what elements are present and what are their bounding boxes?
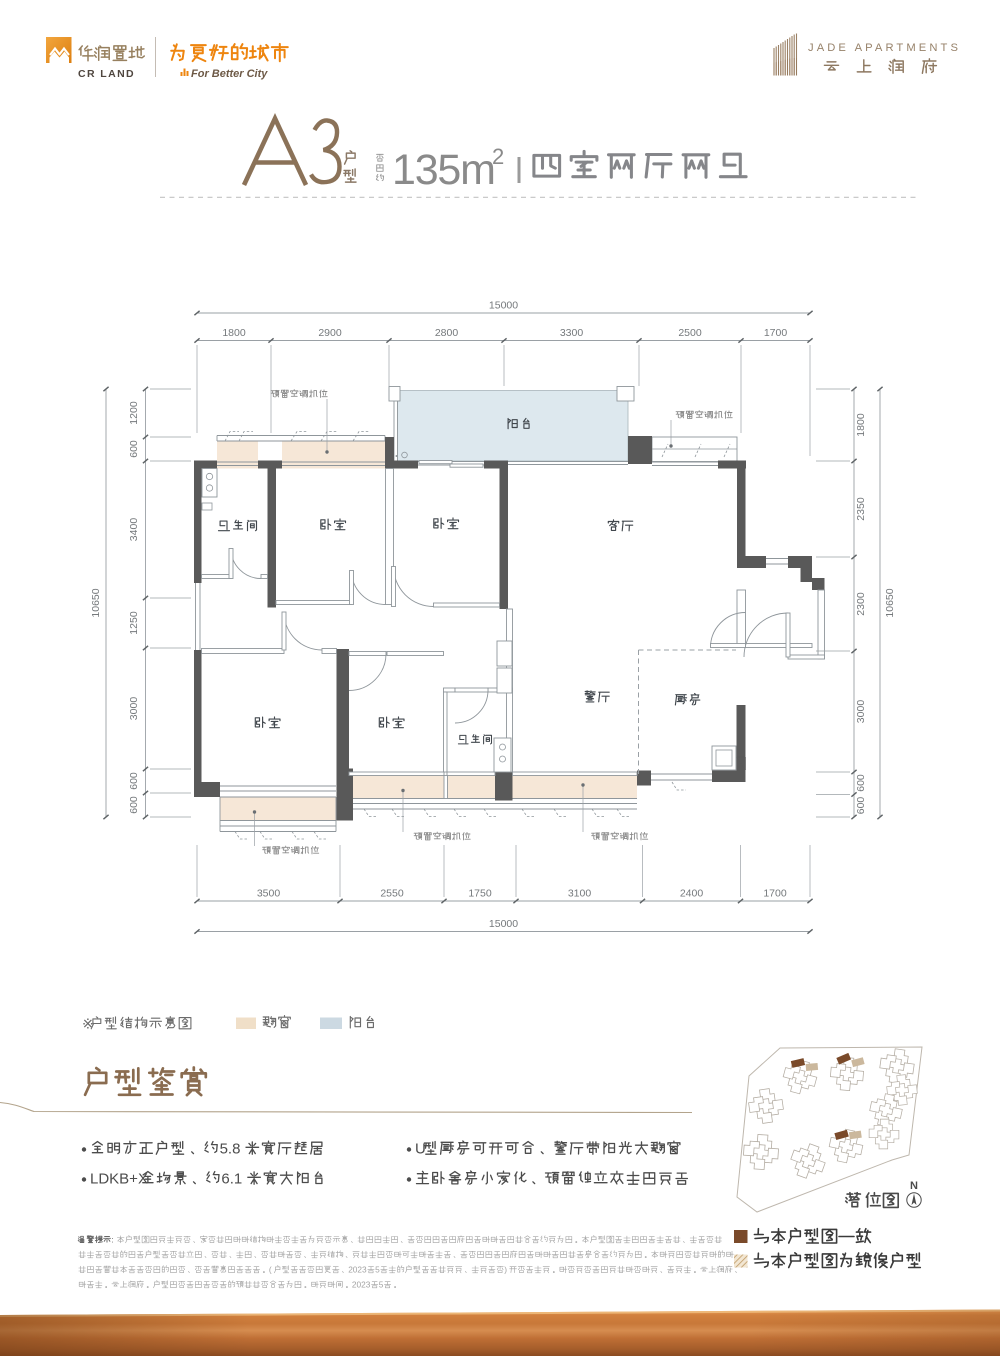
svg-text:15000: 15000 [489,918,518,930]
svg-text:600: 600 [855,797,867,815]
svg-text::: : [111,1235,113,1245]
svg-text:CR LAND: CR LAND [78,68,135,80]
svg-text:1700: 1700 [763,888,787,900]
svg-text:3400: 3400 [128,518,140,542]
svg-text:10650: 10650 [90,588,102,617]
svg-text:10650: 10650 [884,588,896,617]
svg-text:JADE APARTMENTS: JADE APARTMENTS [808,42,961,54]
svg-text:LDKB+X: LDKB+X [90,1171,148,1188]
svg-text:2800: 2800 [435,327,459,339]
svg-text:3300: 3300 [560,327,584,339]
svg-text:3000: 3000 [128,697,140,721]
svg-text:135m: 135m [392,146,495,194]
svg-text:2300: 2300 [855,592,867,616]
svg-text:15000: 15000 [489,300,518,312]
svg-text:1750: 1750 [468,888,492,900]
svg-text:600: 600 [855,774,867,792]
svg-text:5: 5 [379,1280,384,1290]
svg-text:3000: 3000 [855,700,867,724]
svg-text:6.1: 6.1 [221,1171,242,1188]
svg-text:2900: 2900 [318,327,342,339]
svg-text:600: 600 [128,796,140,814]
svg-text:For Better City: For Better City [191,68,268,80]
svg-text:N: N [910,1180,918,1192]
svg-text:1250: 1250 [128,611,140,635]
svg-text:2550: 2550 [380,888,404,900]
svg-text:2: 2 [492,144,504,169]
svg-text:1700: 1700 [764,327,788,339]
svg-text:1800: 1800 [855,413,867,437]
svg-text:5: 5 [375,1265,380,1275]
svg-text:2500: 2500 [678,327,702,339]
svg-text:): ) [504,1265,507,1275]
svg-text:※: ※ [82,1015,94,1031]
svg-text:600: 600 [128,772,140,790]
svg-text:2350: 2350 [855,497,867,521]
svg-text:(: ( [269,1265,272,1275]
svg-text:1200: 1200 [128,401,140,425]
svg-text:3100: 3100 [568,888,592,900]
svg-text:2023: 2023 [352,1280,371,1290]
svg-text:3500: 3500 [257,888,281,900]
svg-text:2023: 2023 [348,1265,367,1275]
svg-text:2400: 2400 [680,888,704,900]
svg-text:1800: 1800 [222,327,246,339]
svg-text:600: 600 [128,440,140,458]
svg-text:5.8: 5.8 [220,1141,241,1158]
